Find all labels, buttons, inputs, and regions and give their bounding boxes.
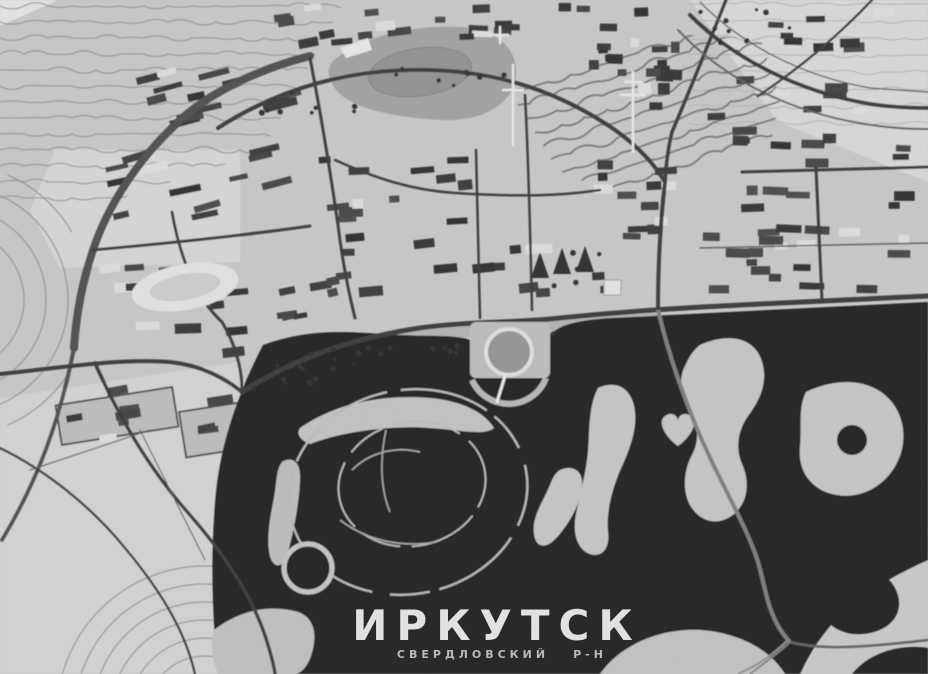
irkutsk-city-plan-photo: ИРКУТСК СВЕРДЛОВСКИЙ Р-Н	[0, 0, 928, 674]
photo-grain	[0, 0, 928, 674]
plan-canvas: ИРКУТСК СВЕРДЛОВСКИЙ Р-Н	[0, 0, 928, 674]
